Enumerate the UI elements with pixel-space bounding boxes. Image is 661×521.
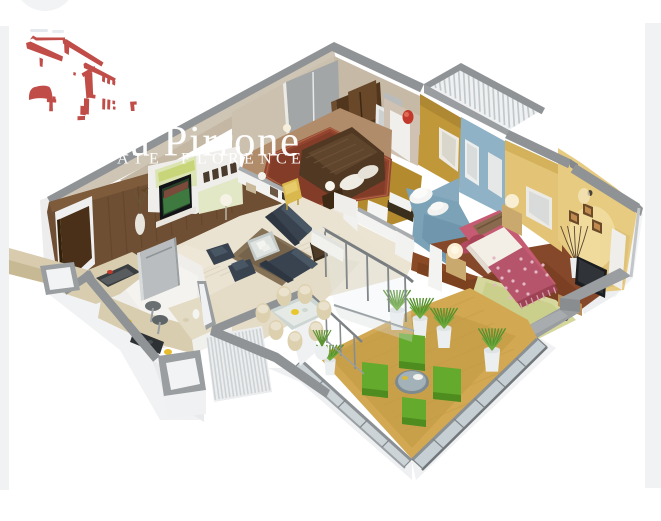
svg-text:E: E — [291, 151, 301, 168]
svg-text:A: A — [117, 151, 129, 168]
svg-text:F: F — [181, 151, 190, 168]
svg-text:L: L — [197, 151, 207, 168]
svg-text:C: C — [276, 151, 287, 168]
svg-text:E: E — [149, 151, 159, 168]
svg-text:O: O — [212, 151, 224, 168]
svg-text:N: N — [260, 151, 272, 168]
svg-text:R: R — [228, 151, 239, 168]
svg-text:T: T — [101, 151, 111, 168]
svg-text:E: E — [244, 151, 254, 168]
svg-text:T: T — [133, 151, 143, 168]
